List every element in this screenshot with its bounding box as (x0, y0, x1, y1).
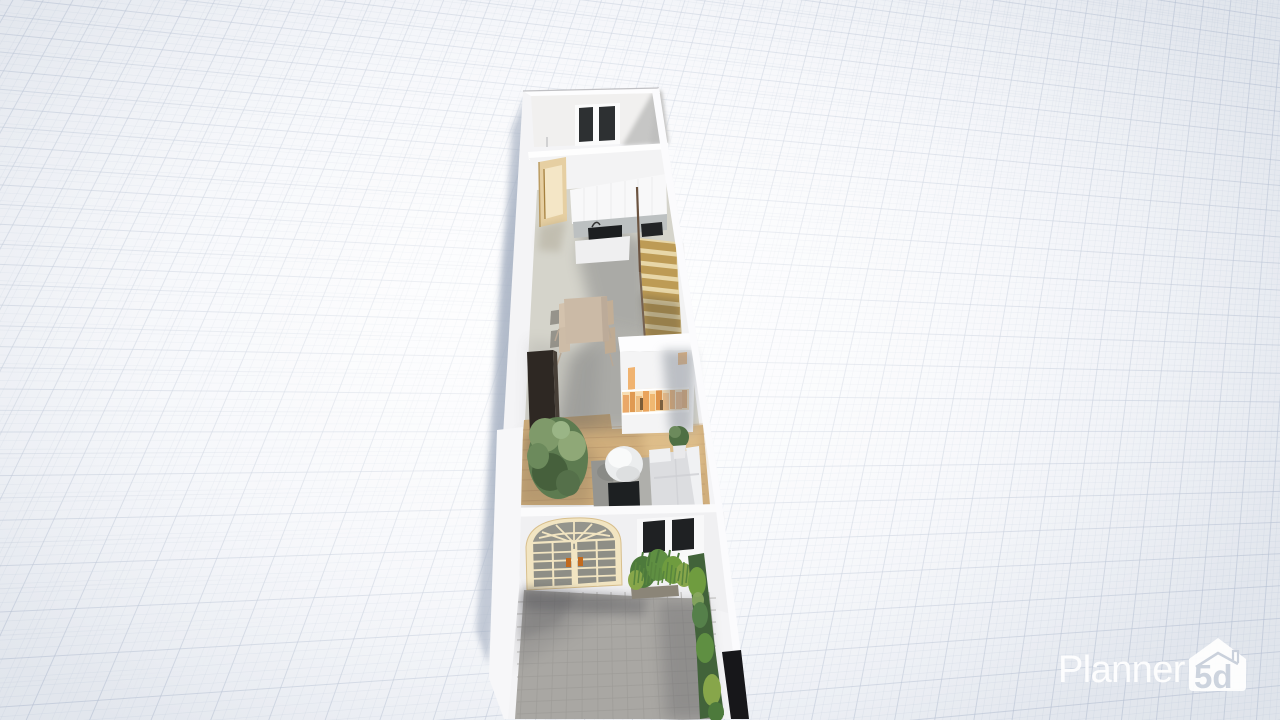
svg-text:5d: 5d (1194, 658, 1233, 695)
